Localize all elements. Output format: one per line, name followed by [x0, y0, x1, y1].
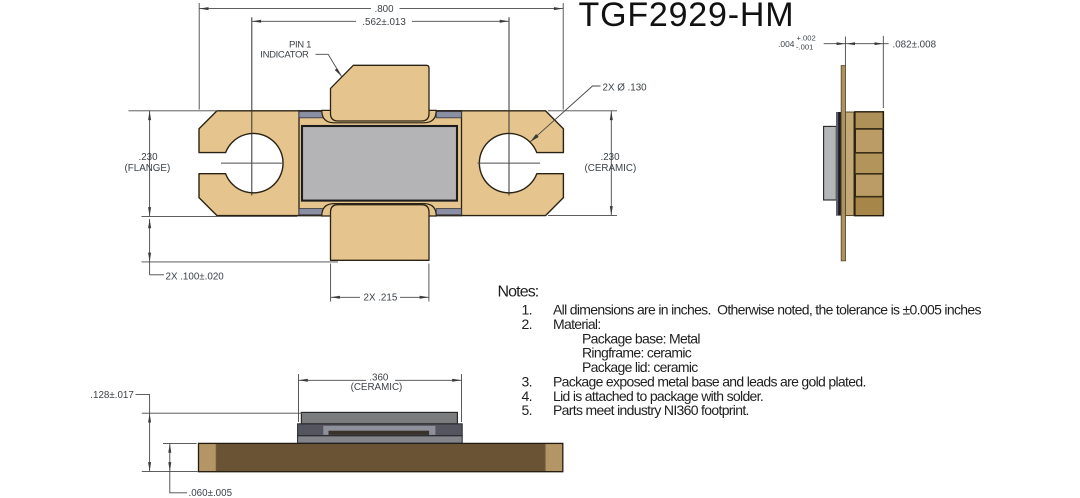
svg-text:.800: .800: [375, 4, 395, 15]
svg-text:.230: .230: [139, 152, 159, 163]
svg-text:Notes:: Notes:: [498, 283, 539, 300]
svg-text:(FLANGE): (FLANGE): [125, 163, 171, 174]
svg-text:.230: .230: [601, 152, 621, 163]
svg-text:(CERAMIC): (CERAMIC): [585, 163, 637, 174]
svg-text:2.: 2.: [522, 316, 532, 332]
svg-text:2X .215: 2X .215: [364, 292, 398, 303]
svg-text:Parts meet industry NI360 foot: Parts meet industry NI360 footprint.: [553, 402, 749, 418]
svg-text:TGF2929-HM: TGF2929-HM: [579, 0, 795, 34]
svg-text:.060±.005: .060±.005: [189, 488, 233, 498]
svg-text:(CERAMIC): (CERAMIC): [351, 382, 403, 393]
svg-text:INDICATOR: INDICATOR: [260, 49, 309, 60]
svg-text:-.001: -.001: [796, 43, 813, 52]
svg-text:All dimensions are in inches.: All dimensions are in inches. Otherwise …: [553, 302, 981, 318]
svg-text:.004: .004: [778, 39, 795, 49]
svg-text:5.: 5.: [522, 402, 532, 418]
svg-text:.562±.013: .562±.013: [362, 17, 406, 28]
svg-text:2X .100±.020: 2X .100±.020: [166, 272, 225, 283]
svg-text:.128±.017: .128±.017: [90, 390, 134, 401]
svg-text:.082±.008: .082±.008: [893, 39, 937, 50]
svg-text:+.002: +.002: [797, 33, 816, 42]
svg-text:2X Ø .130: 2X Ø .130: [603, 82, 648, 93]
